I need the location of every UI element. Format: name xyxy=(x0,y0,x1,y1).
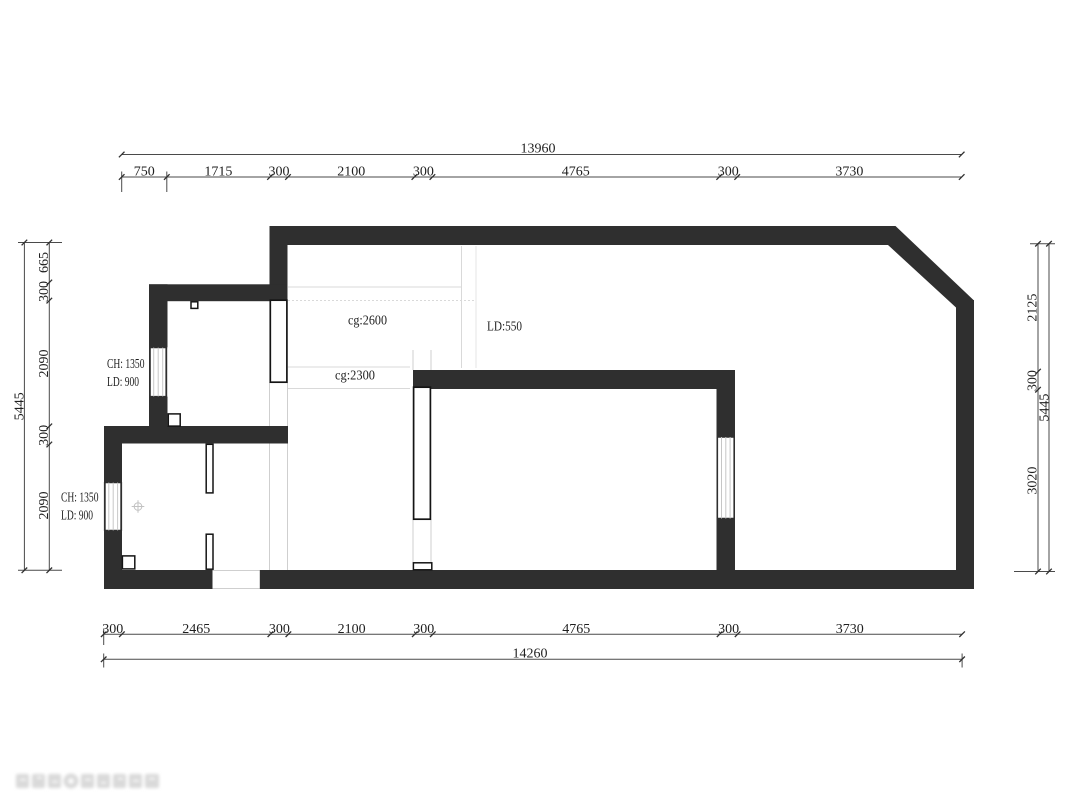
svg-text:2090: 2090 xyxy=(37,492,52,520)
svg-text:4765: 4765 xyxy=(562,622,590,637)
svg-text:CH: 1350: CH: 1350 xyxy=(107,356,145,371)
svg-text:665: 665 xyxy=(37,252,52,273)
svg-text:4765: 4765 xyxy=(562,164,590,179)
svg-text:300: 300 xyxy=(37,425,52,446)
svg-text:300: 300 xyxy=(718,622,739,637)
svg-text:300: 300 xyxy=(1025,370,1040,391)
svg-text:3020: 3020 xyxy=(1025,467,1040,495)
svg-text:300: 300 xyxy=(102,622,123,637)
svg-text:LD: 900: LD: 900 xyxy=(61,508,93,523)
svg-text:14260: 14260 xyxy=(513,647,548,662)
svg-text:2100: 2100 xyxy=(337,164,365,179)
svg-text:2100: 2100 xyxy=(338,622,366,637)
svg-text:300: 300 xyxy=(413,164,434,179)
svg-text:cg:2300: cg:2300 xyxy=(335,368,375,383)
svg-text:5445: 5445 xyxy=(1037,394,1052,422)
svg-text:300: 300 xyxy=(269,622,290,637)
svg-text:300: 300 xyxy=(413,622,434,637)
svg-text:3730: 3730 xyxy=(835,164,863,179)
svg-text:LD: 900: LD: 900 xyxy=(107,374,139,389)
svg-text:2465: 2465 xyxy=(182,622,210,637)
svg-text:300: 300 xyxy=(37,281,52,302)
svg-text:300: 300 xyxy=(269,164,290,179)
svg-text:13960: 13960 xyxy=(521,141,556,156)
svg-text:300: 300 xyxy=(718,164,739,179)
svg-text:LD:550: LD:550 xyxy=(487,320,522,335)
svg-text:cg:2600: cg:2600 xyxy=(348,314,387,329)
svg-text:2125: 2125 xyxy=(1025,294,1040,322)
svg-text:2090: 2090 xyxy=(37,350,52,378)
svg-text:5445: 5445 xyxy=(12,392,27,420)
svg-text:CH: 1350: CH: 1350 xyxy=(61,489,99,504)
svg-text:750: 750 xyxy=(134,164,155,179)
svg-text:3730: 3730 xyxy=(836,622,864,637)
svg-text:1715: 1715 xyxy=(204,164,232,179)
